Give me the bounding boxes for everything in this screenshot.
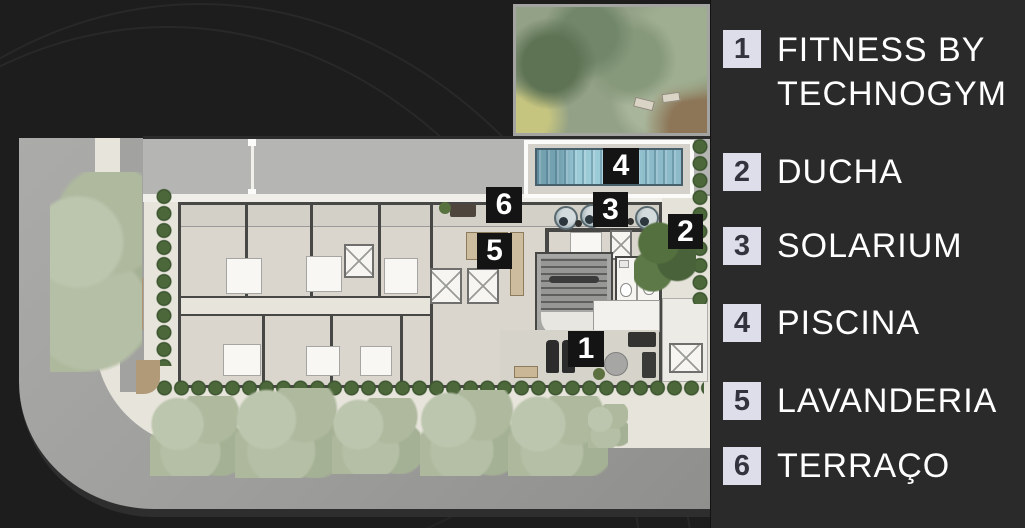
garden-lounger: [661, 92, 680, 103]
furniture: [306, 256, 342, 292]
legend-item-fitness: 1 FITNESS BY TECHNOGYM: [723, 28, 1019, 116]
shower-basin: [554, 206, 578, 230]
treadmill: [546, 340, 559, 373]
hedge-row: [153, 188, 175, 366]
furniture: [384, 258, 418, 294]
drain: [627, 218, 634, 225]
furniture: [306, 346, 340, 376]
legend-label: LAVANDERIA: [777, 379, 997, 423]
plan-marker-2: 2: [668, 214, 703, 249]
pavement-joint: [251, 143, 254, 195]
legend-panel: 1 FITNESS BY TECHNOGYM 2 DUCHA 3 SOLARIU…: [710, 0, 1025, 528]
legend-number-badge: 4: [723, 304, 761, 342]
plan-marker-1: 1: [568, 331, 604, 367]
bathroom: [593, 300, 660, 332]
legend-item-lavanderia: 5 LAVANDERIA: [723, 379, 1019, 423]
legend-item-ducha: 2 DUCHA: [723, 150, 1019, 194]
service-hatch: [669, 343, 703, 373]
tree: [588, 404, 628, 448]
plan-marker-4: 4: [603, 148, 639, 184]
toilet: [620, 283, 632, 297]
furniture: [223, 344, 261, 376]
gym-equipment: [642, 352, 656, 378]
wall: [400, 316, 403, 385]
gym-equipment: [628, 332, 656, 347]
wall: [378, 205, 381, 296]
pavement-joint: [248, 139, 256, 146]
tree: [150, 396, 242, 476]
plan-marker-3: 3: [593, 192, 628, 227]
gym-equipment: [604, 352, 628, 376]
legend-label: TERRAÇO: [777, 444, 950, 488]
legend-number-badge: 6: [723, 447, 761, 485]
legend-label-line2: TECHNOGYM: [777, 72, 1007, 116]
elevator: [467, 268, 499, 304]
screenshot-root: 1 2 3 4 5 6 1 FITNESS BY TECHNOGYM 2 DUC…: [0, 0, 1025, 528]
tree: [420, 390, 515, 476]
drain: [575, 220, 582, 227]
legend-number-badge: 5: [723, 382, 761, 420]
corridor: [181, 296, 431, 316]
plan-marker-6: 6: [486, 187, 522, 223]
legend-item-piscina: 4 PISCINA: [723, 301, 1019, 345]
tree: [235, 388, 340, 478]
legend-label: DUCHA: [777, 150, 903, 194]
wall: [262, 316, 265, 385]
legend-item-solarium: 3 SOLARIUM: [723, 224, 1019, 268]
garden: [513, 4, 710, 136]
plan-marker-5: 5: [477, 233, 512, 269]
elevator: [430, 268, 462, 304]
legend-label-line1: FITNESS BY: [777, 28, 1007, 72]
legend-number-badge: 3: [723, 227, 761, 265]
legend-label: PISCINA: [777, 301, 920, 345]
legend-label: SOLARIUM: [777, 224, 963, 268]
plant: [439, 202, 451, 214]
tree: [332, 398, 420, 474]
legend-number-badge: 2: [723, 153, 761, 191]
sink: [619, 260, 629, 268]
tree: [50, 172, 142, 372]
furniture: [226, 258, 262, 294]
furniture: [360, 346, 392, 376]
furniture: [514, 366, 538, 378]
laundry-counter: [510, 232, 524, 296]
stair-rail: [549, 276, 599, 283]
garden-lounger: [633, 97, 655, 112]
terrace-table: [450, 204, 476, 217]
skylight: [344, 244, 374, 278]
service-area: [662, 298, 708, 382]
legend-number-badge: 1: [723, 30, 761, 68]
site-plan: 1 2 3 4 5 6: [0, 0, 710, 528]
legend-label: FITNESS BY TECHNOGYM: [777, 28, 1007, 116]
legend-item-terraco: 6 TERRAÇO: [723, 444, 1019, 488]
